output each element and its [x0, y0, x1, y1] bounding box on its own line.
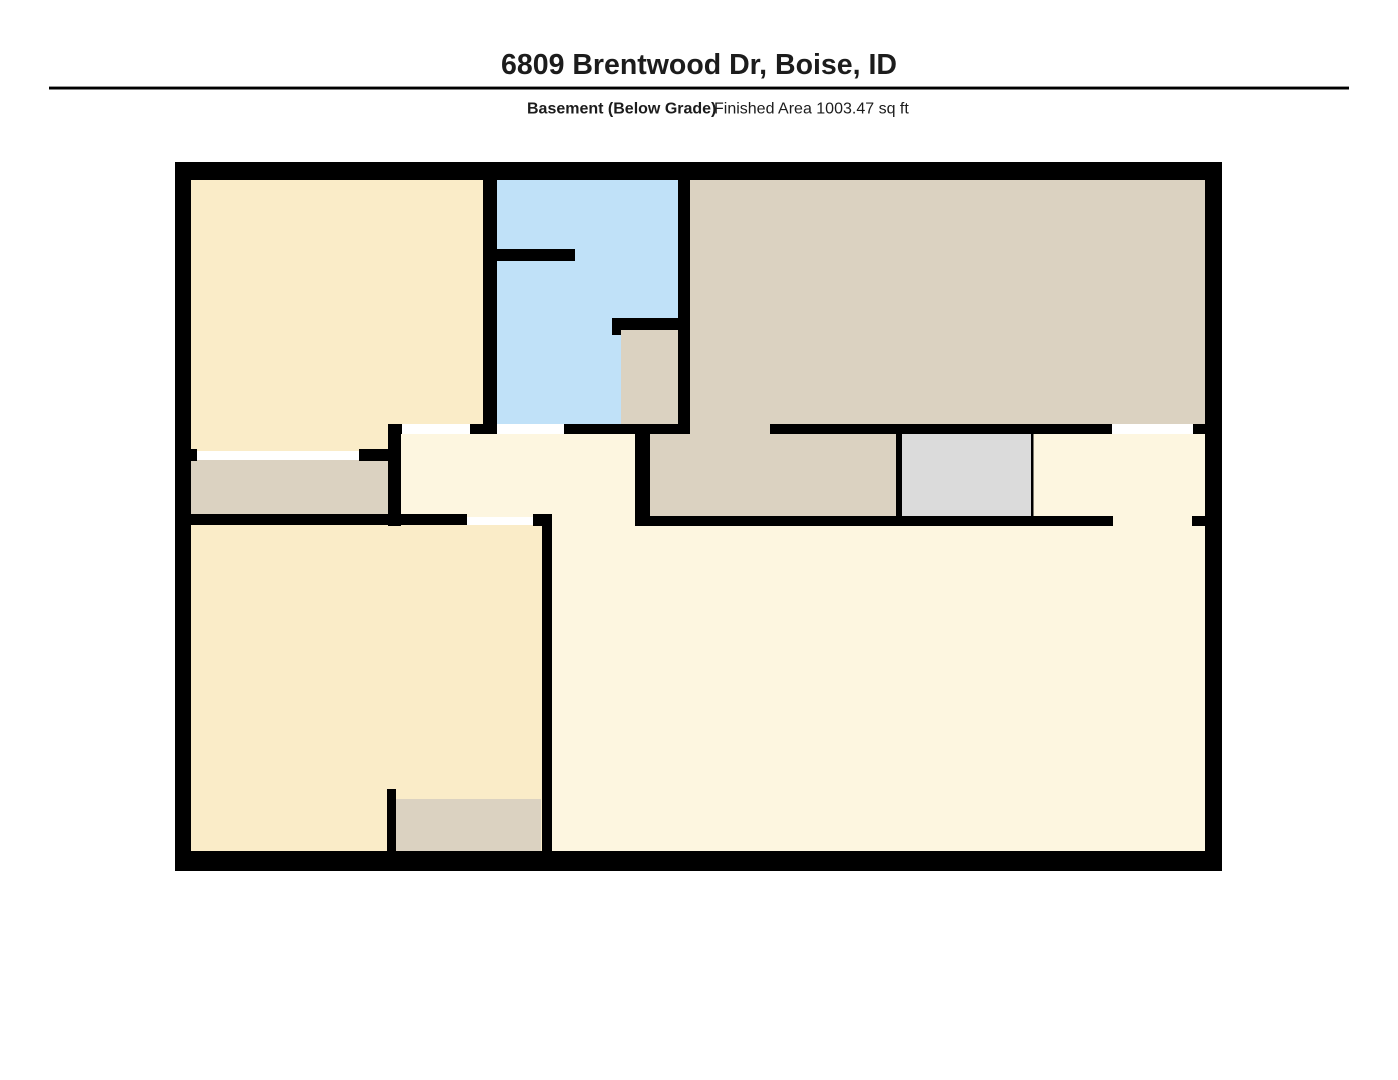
svg-text:6809 Brentwood Dr, Boise, ID: 6809 Brentwood Dr, Boise, ID	[501, 49, 897, 81]
svg-text:Basement (Below Grade): Basement (Below Grade)	[527, 101, 716, 118]
svg-text:Finished Area 1003.47 sq ft: Finished Area 1003.47 sq ft	[714, 101, 909, 118]
